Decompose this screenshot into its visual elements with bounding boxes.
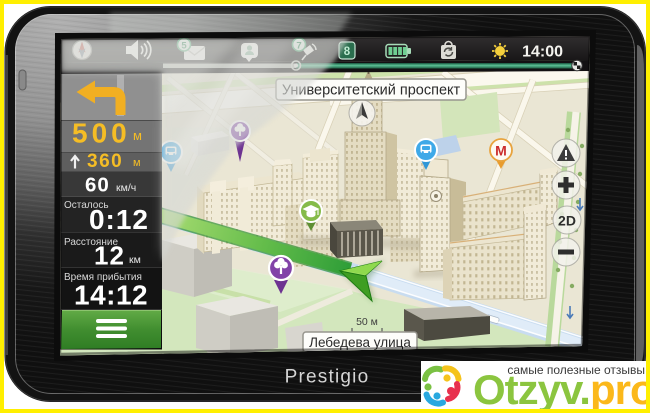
svg-text:360: 360 — [87, 151, 123, 172]
svg-text:M: M — [495, 143, 507, 159]
svg-text:14:00: 14:00 — [522, 44, 563, 61]
svg-text:Otzyv.pro: Otzyv.pro — [473, 366, 650, 413]
svg-text:14:12: 14:12 — [74, 280, 148, 311]
svg-text:500: 500 — [72, 118, 131, 149]
svg-text:0:12: 0:12 — [89, 204, 149, 235]
svg-text:км/ч: км/ч — [116, 182, 136, 194]
svg-text:м: м — [133, 157, 141, 169]
svg-text:8: 8 — [344, 46, 351, 58]
svg-text:50 м: 50 м — [356, 316, 378, 328]
svg-text:м: м — [133, 128, 142, 143]
svg-text:Prestigio: Prestigio — [285, 367, 370, 388]
svg-text:км: км — [129, 254, 141, 266]
svg-text:12: 12 — [94, 241, 125, 271]
svg-text:2D: 2D — [558, 213, 576, 229]
svg-text:60: 60 — [85, 174, 110, 197]
